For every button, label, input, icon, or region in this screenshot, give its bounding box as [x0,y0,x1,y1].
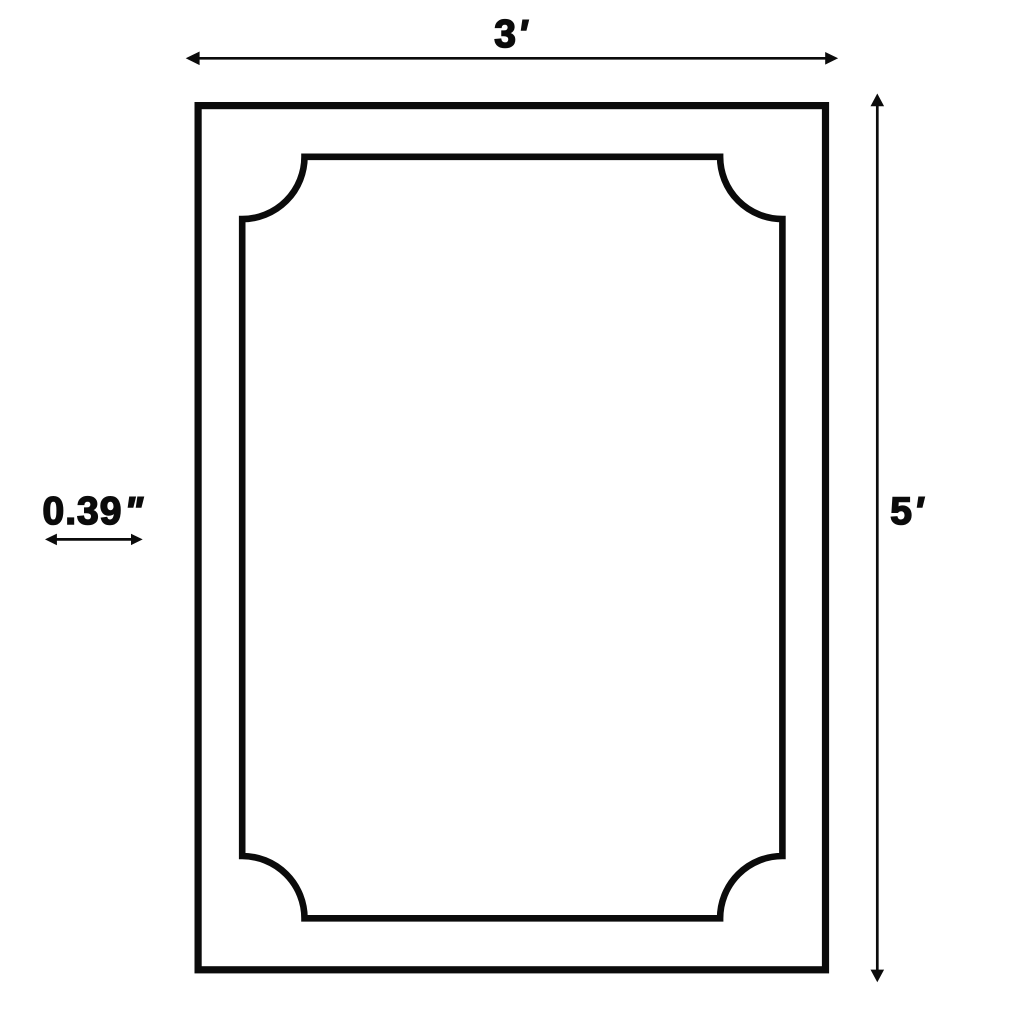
svg-text:3': 3' [494,13,529,56]
svg-text:0.39": 0.39" [43,490,144,533]
svg-text:5': 5' [890,490,925,533]
